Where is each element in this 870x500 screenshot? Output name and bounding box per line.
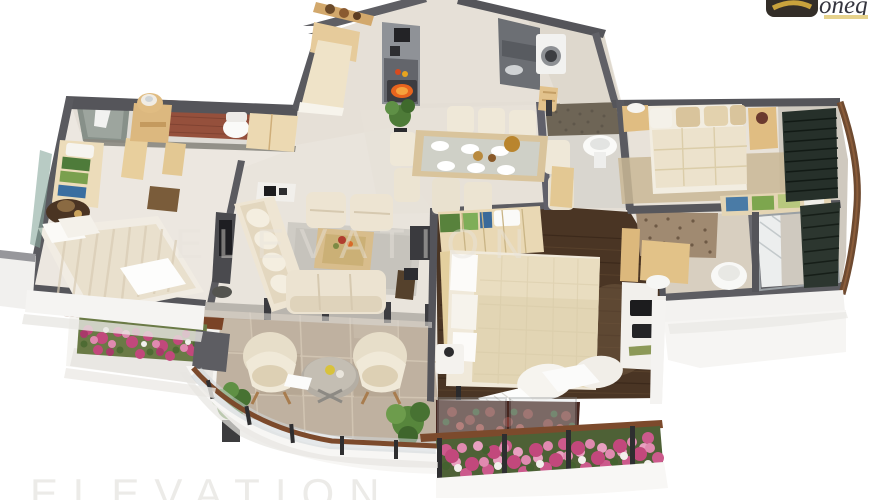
- svg-text:ELEVATION: ELEVATION: [175, 220, 540, 267]
- svg-text:ELEVATION: ELEVATION: [30, 470, 395, 500]
